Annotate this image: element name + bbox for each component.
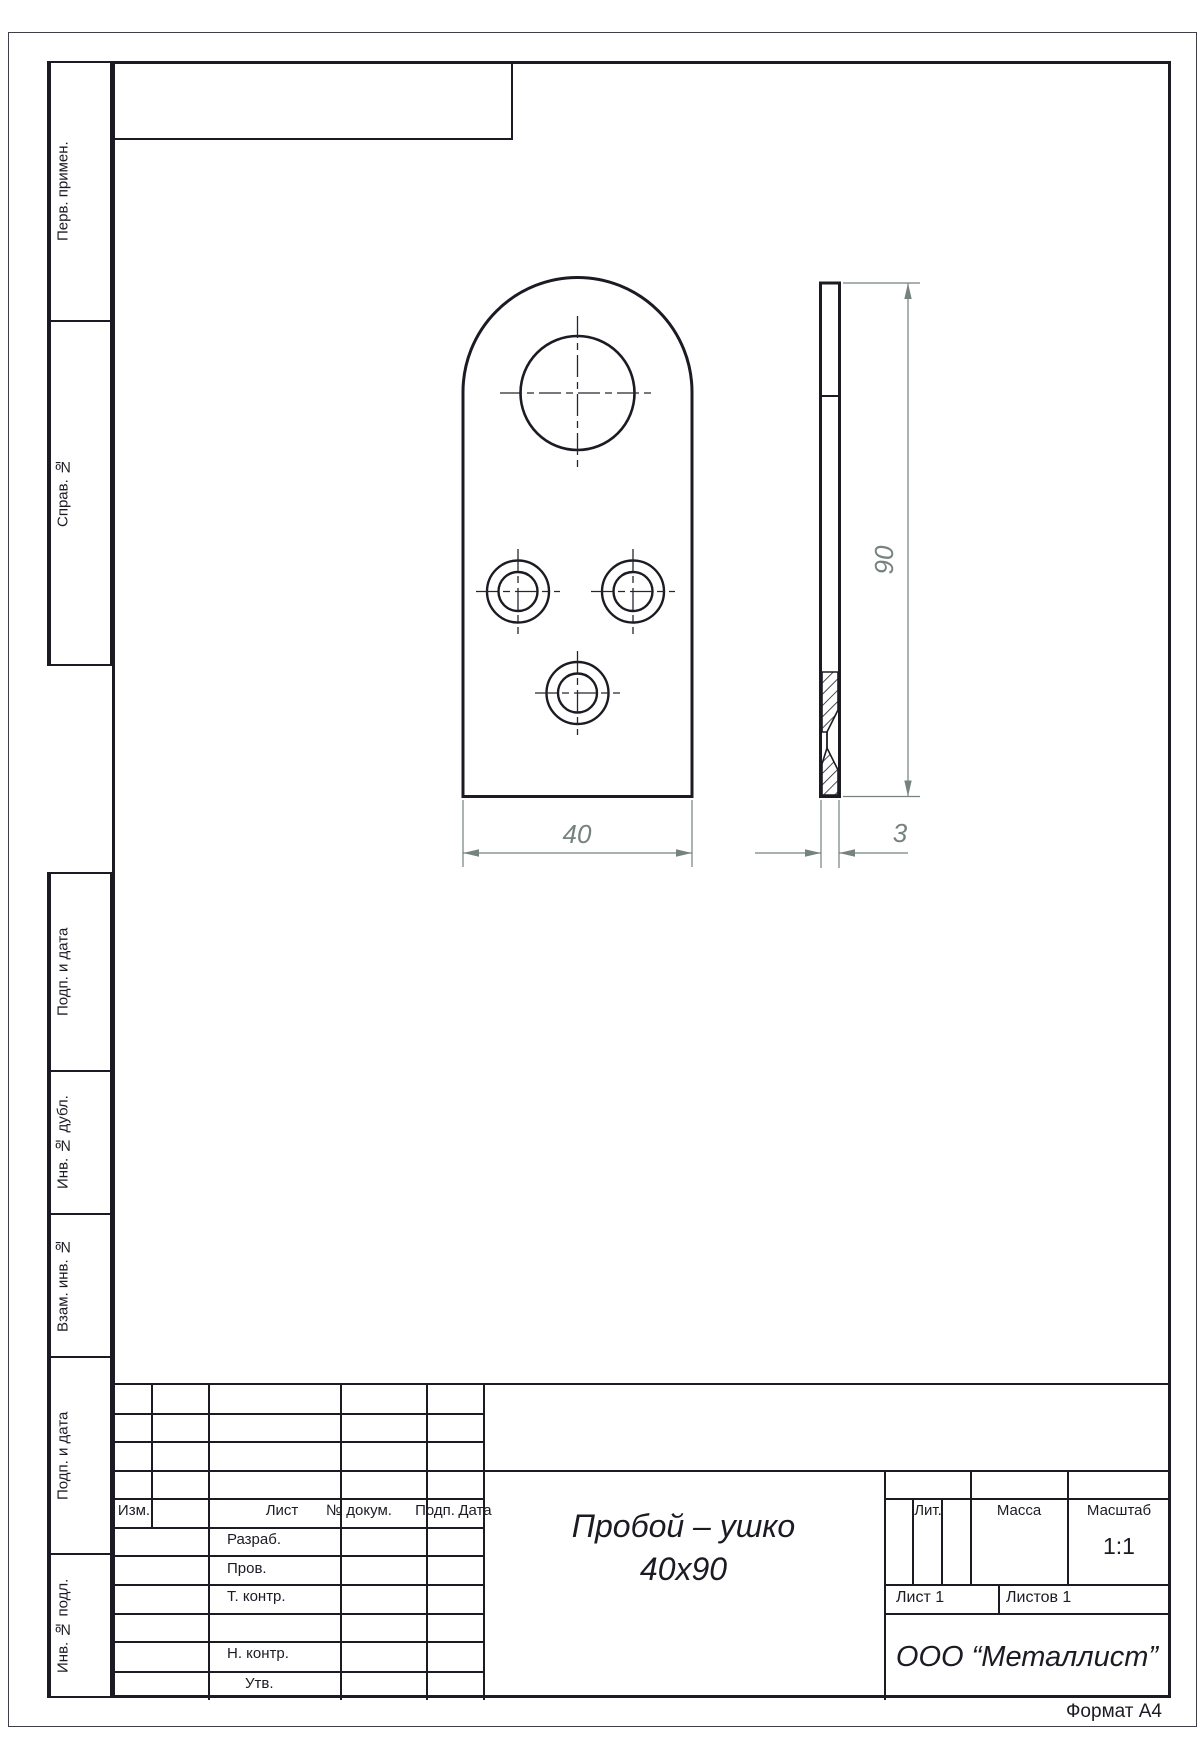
row-utv: Утв. bbox=[245, 1675, 274, 1692]
scale-value: 1:1 bbox=[1069, 1533, 1169, 1560]
sidebar-label: Перв. примен. bbox=[49, 63, 75, 320]
part-name-line1: Пробой – ушко bbox=[572, 1505, 795, 1548]
lit-header: Лит. bbox=[888, 1502, 968, 1519]
sidebar-label: Инв. № подл. bbox=[49, 1555, 75, 1696]
massa-header: Масса bbox=[979, 1502, 1059, 1519]
row-nkontr: Н. контр. bbox=[227, 1645, 289, 1662]
drawing-sheet: Перв. примен. Справ. № Подп. и дата Инв.… bbox=[0, 0, 1200, 1760]
company-name: ООО “Металлист” bbox=[884, 1614, 1170, 1700]
sidebar-section-inv-podl: Инв. № подл. bbox=[47, 1553, 112, 1698]
masshtab-header: Масштаб bbox=[1069, 1502, 1169, 1519]
sidebar-label: Инв. № дубл. bbox=[49, 1072, 75, 1213]
part-name: Пробой – ушко 40х90 bbox=[483, 1471, 884, 1734]
row-prov: Пров. bbox=[227, 1560, 267, 1577]
sidebar-label: Взам. инв. № bbox=[49, 1215, 75, 1356]
part-name-line2: 40х90 bbox=[640, 1548, 727, 1591]
row-razrab: Разраб. bbox=[227, 1531, 281, 1548]
col-list: Лист bbox=[242, 1502, 322, 1519]
col-izm: Изм. bbox=[112, 1502, 156, 1519]
sheet-number: Лист 1 bbox=[896, 1589, 944, 1607]
top-designation-stamp bbox=[112, 61, 513, 140]
sidebar-label: Справ. № bbox=[49, 322, 75, 664]
format-note: Формат А4 bbox=[940, 1701, 1162, 1723]
sidebar-label: Подп. и дата bbox=[49, 874, 75, 1070]
row-tkontr: Т. контр. bbox=[227, 1588, 286, 1605]
sidebar-section-podp-data-1: Подп. и дата bbox=[47, 872, 112, 1072]
sheets-total: Листов 1 bbox=[1006, 1589, 1071, 1607]
sidebar-section-sprav-no: Справ. № bbox=[47, 320, 112, 666]
sidebar-section-vzam-inv: Взам. инв. № bbox=[47, 1213, 112, 1358]
title-block: Изм. Лист № докум. Подп. Дата Разраб. Пр… bbox=[112, 1383, 1170, 1698]
sidebar-label: Подп. и дата bbox=[49, 1358, 75, 1553]
sidebar-section-perv-primen: Перв. примен. bbox=[47, 61, 112, 322]
sidebar-section-inv-dubl: Инв. № дубл. bbox=[47, 1070, 112, 1215]
sidebar-section-podp-data-2: Подп. и дата bbox=[47, 1356, 112, 1555]
col-ndokum: № докум. bbox=[319, 1502, 399, 1519]
